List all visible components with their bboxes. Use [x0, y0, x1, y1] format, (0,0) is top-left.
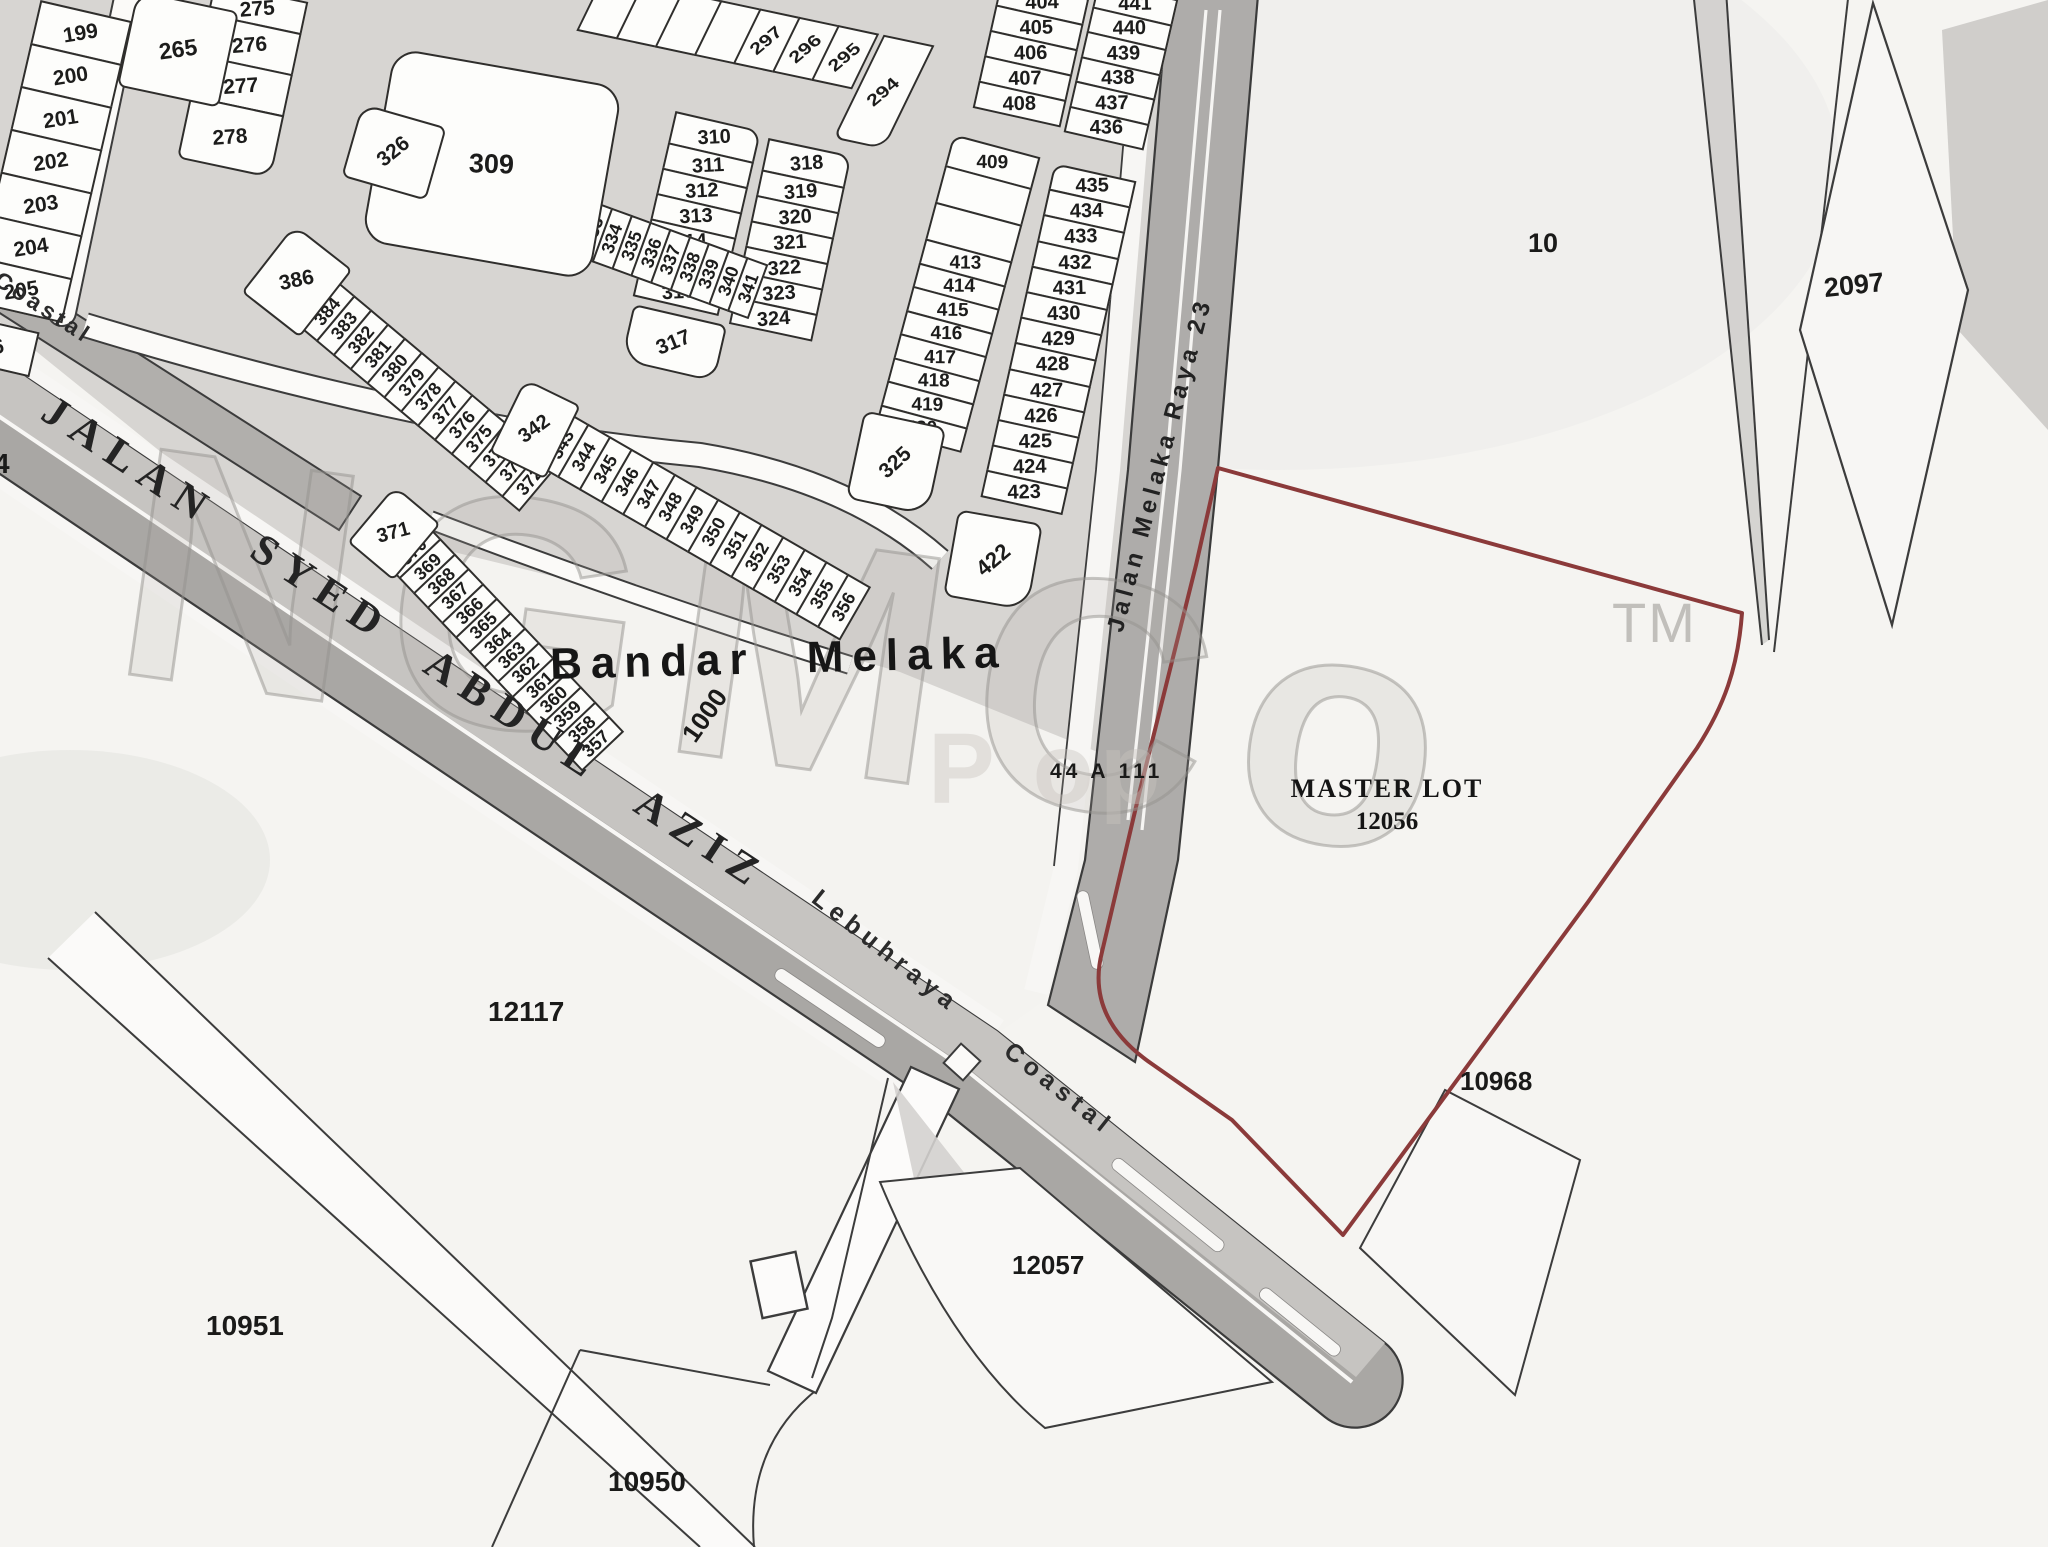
lot-422: 422 — [943, 509, 1043, 611]
parcel-line — [48, 958, 700, 1547]
parcel-label-2097: 2097 — [1823, 267, 1886, 304]
survey-map: NGMCo P op TM 1992002012022032042056 275… — [0, 0, 2048, 1547]
gray-wash-topright — [1942, 0, 2048, 430]
parcel-line — [580, 1350, 770, 1385]
master-lot-number: 12056 — [1272, 808, 1502, 836]
lot-cell-6: 6 — [0, 316, 40, 377]
parcel-10968 — [1360, 1090, 1580, 1395]
building-footprint — [750, 1252, 807, 1318]
parcel-label-12057: 12057 — [1012, 1250, 1084, 1281]
parcel-2097 — [1800, 3, 1968, 625]
parcel-label-10950: 10950 — [608, 1466, 686, 1498]
parcel-label-10968: 10968 — [1460, 1066, 1532, 1097]
parcel-line — [95, 912, 755, 1547]
map-vector-layer — [0, 0, 2048, 1547]
parcel-label-10951: 10951 — [206, 1310, 284, 1342]
parcel-label-12117: 12117 — [488, 996, 564, 1028]
master-lot-label: MASTER LOT 12056 — [1272, 774, 1502, 836]
parcel-label-10: 10 — [1528, 228, 1558, 259]
paper-wash — [0, 750, 270, 970]
divider-strip — [48, 912, 755, 1547]
parcel-label-4: 4 — [0, 448, 10, 480]
reference-label: 44 A 111 — [1050, 760, 1163, 784]
parcel-10950-boundary — [753, 1392, 814, 1547]
master-lot-title: MASTER LOT — [1272, 774, 1502, 804]
